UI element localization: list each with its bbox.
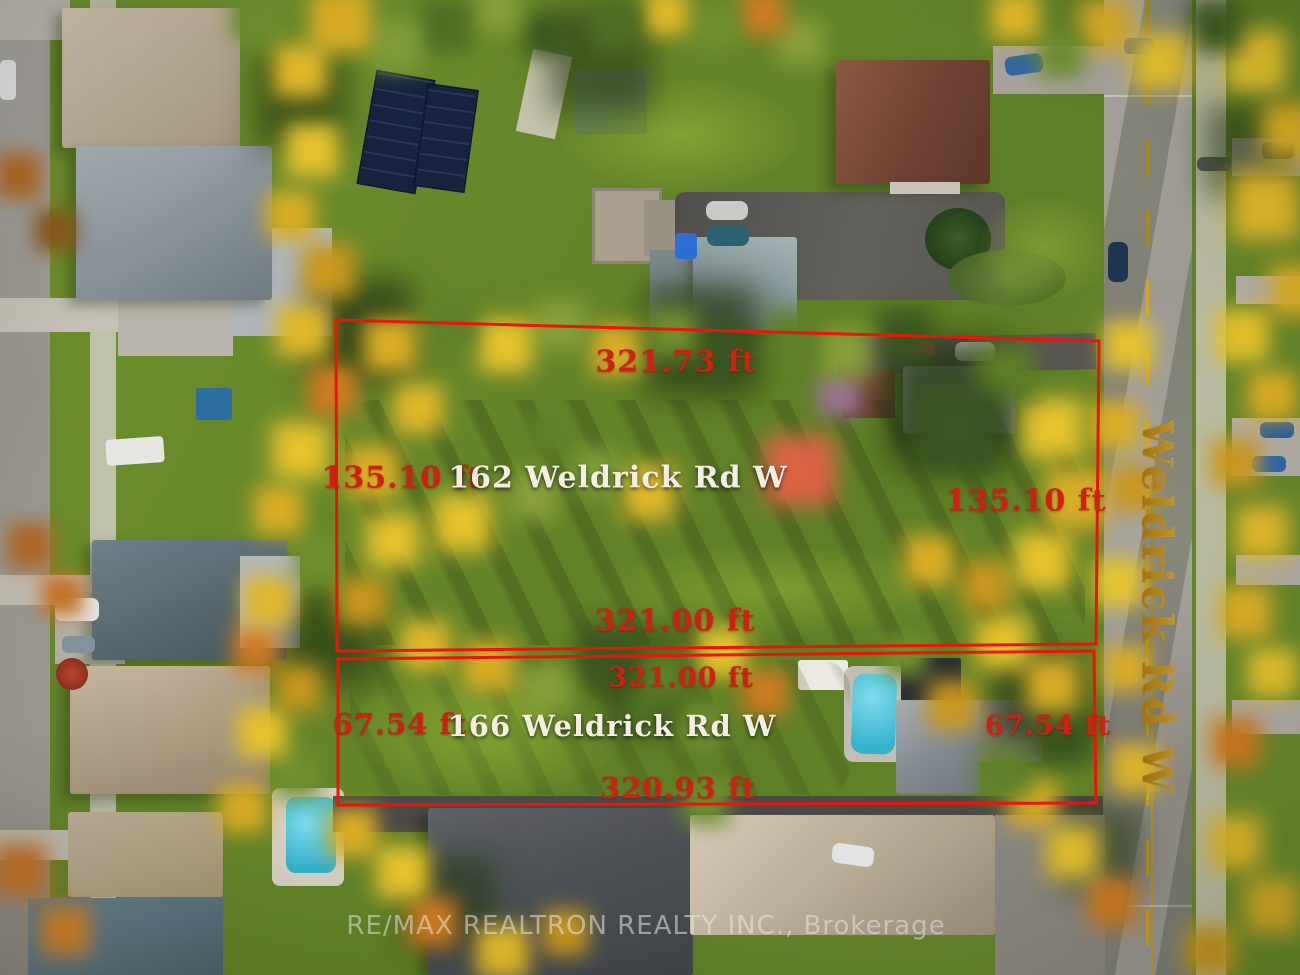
parcel-162-right-measurement: 135.10 ft bbox=[945, 484, 1106, 519]
parcel-166-address-label: 166 Weldrick Rd W bbox=[448, 709, 777, 743]
parcel-162-bottom-measurement: 321.00 ft bbox=[594, 604, 755, 639]
brokerage-watermark: RE/MAX REALTRON REALTY INC., Brokerage bbox=[346, 911, 945, 941]
parcel-166-right-measurement: 67.54 ft bbox=[985, 711, 1111, 742]
parcel-162-top-measurement: 321.73 ft bbox=[595, 345, 756, 380]
street-name-label: Weldrick Rd W bbox=[1133, 419, 1182, 794]
parcel-166-bottom-measurement: 320.93 ft bbox=[600, 771, 756, 805]
parcel-166-top-measurement: 321.00 ft bbox=[608, 663, 754, 694]
aerial-photo: 321.73 ft 135.10 ft 162 Weldrick Rd W 13… bbox=[0, 0, 1300, 975]
parcel-162-address-label: 162 Weldrick Rd W bbox=[448, 461, 788, 496]
